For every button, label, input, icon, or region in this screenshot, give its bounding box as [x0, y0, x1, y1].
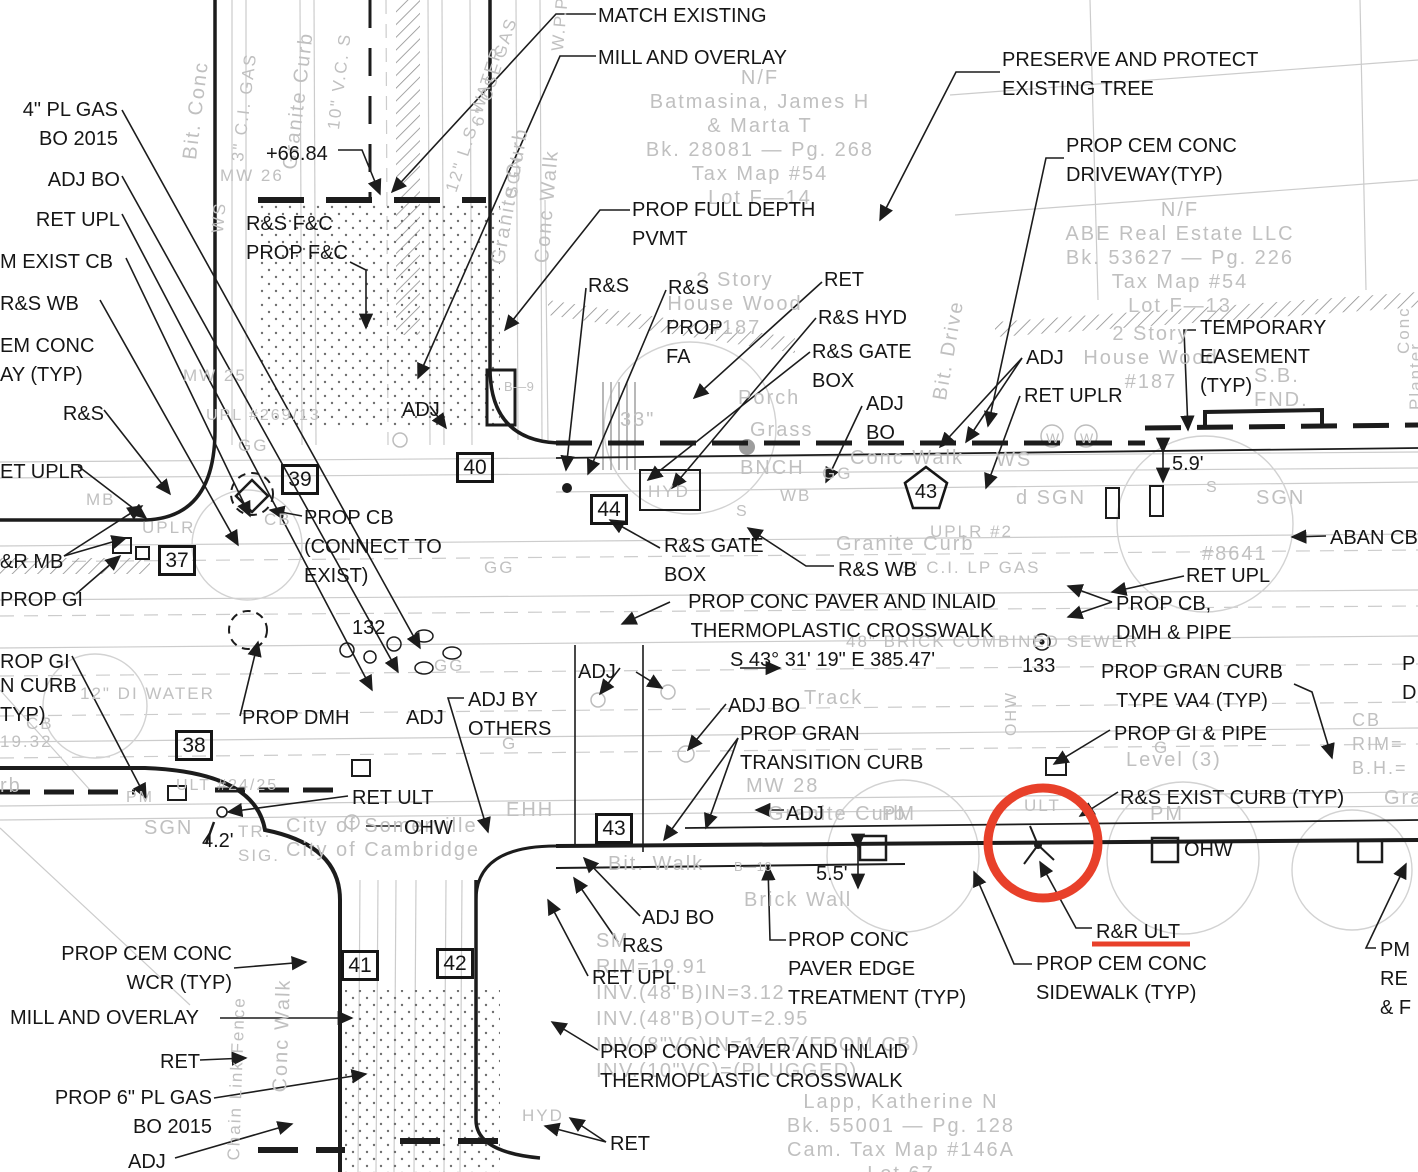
station-box-39: 39: [281, 464, 319, 495]
ohw-rot: OHW: [1000, 691, 1024, 736]
brick-wall: Brick Wall: [744, 888, 852, 912]
callout-bearing: S 43° 31' 19" E 385.47': [730, 646, 935, 675]
callout-ret-ult: RET ULT: [352, 784, 434, 813]
callout-prop-full-depth: PROP FULL DEPTH PVMT: [632, 196, 815, 254]
callout-prop-fa: PROP FA: [666, 314, 723, 372]
callout-adj-by-others: ADJ BY OTHERS: [468, 686, 551, 744]
callout-prop-wcr: PROP CEM CONC WCR (TYP): [30, 940, 232, 998]
station-box-40: 40: [456, 452, 494, 483]
callout-rs-fc-prop-fc: R&S F&C PROP F&C: [246, 210, 348, 268]
gg-2: GG: [484, 556, 514, 580]
gg-3: GG: [434, 654, 464, 678]
callout-adj-bottom: ADJ: [128, 1148, 166, 1172]
gg-4: GG: [822, 462, 852, 486]
callout-adj-right: ADJ: [1026, 344, 1064, 373]
bit-walk: Bit. Walk: [608, 852, 704, 876]
porch: Porch: [738, 386, 800, 410]
callout-rr-ult: R&R ULT: [1096, 918, 1180, 947]
mb: MB: [86, 488, 116, 512]
conc-walk: Conc Walk: [850, 446, 964, 470]
s-1: S: [736, 500, 749, 524]
callout-prop-cb-dmh-pipe: PROP CB, DMH & PIPE: [1116, 590, 1232, 648]
ws: WS: [996, 448, 1032, 472]
di-water: 12" DI WATER: [80, 682, 215, 706]
callout-prop-driveway: PROP CEM CONC DRIVEWAY(TYP): [1066, 132, 1237, 190]
callout-spot-elev: +66.84: [266, 140, 328, 169]
callout-rs-gate-box-2: R&S GATE BOX: [664, 532, 764, 590]
pm-3: PM: [126, 786, 154, 810]
callout-crosswalk-1: PROP CONC PAVER AND INLAID THERMOPLASTIC…: [660, 588, 1024, 646]
callout-aban-cb: ABAN CB: [1330, 524, 1418, 553]
wb: WB: [780, 484, 811, 508]
gg-1: GG: [238, 434, 268, 458]
s-2: S: [1206, 476, 1219, 500]
callout-rs-1: R&S: [588, 272, 629, 301]
sgn-2: SGN: [1256, 486, 1305, 510]
callout-temp-easement: TEMPORARY EASEMENT (TYP): [1200, 314, 1326, 401]
callout-pm-frag: PM RE & F: [1380, 936, 1411, 1023]
w-2: W: [1080, 426, 1093, 450]
callout-right-edge-frag: P D: [1402, 650, 1416, 708]
callout-dim-55: 5.5': [816, 860, 848, 889]
callout-adj-bo-lower: ADJ BO: [728, 692, 800, 721]
callout-adj-top: ADJ: [402, 396, 440, 425]
hyd-1: HYD: [648, 480, 690, 504]
callout-rs-hyd: R&S HYD: [818, 304, 907, 333]
callout-ohw-right: OHW: [1184, 836, 1233, 865]
callout-mill-overlay-top: MILL AND OVERLAY: [598, 44, 787, 73]
callout-adj-bo-mid: ADJ BO: [866, 390, 904, 448]
callout-crosswalk-2: PROP CONC PAVER AND INLAID THERMOPLASTIC…: [600, 1038, 908, 1096]
callout-dim-42: 4.2': [202, 827, 234, 856]
callout-rs-left: R&S: [0, 400, 104, 429]
gran-cut: Gran: [1384, 786, 1418, 810]
callout-ret-uplr-frag: ET UPLR: [0, 458, 84, 487]
callout-adj-wg: ADJ: [578, 658, 616, 687]
cb-39: CB: [264, 508, 292, 532]
sgn-1: d SGN: [1016, 486, 1086, 510]
callout-gran-transition: PROP GRAN TRANSITION CURB: [740, 720, 923, 778]
parcel-note-batmasina: N/F Batmasina, James H & Marta T Bk. 280…: [600, 66, 920, 210]
callout-6in-pl-gas: PROP 6" PL GAS BO 2015: [20, 1084, 212, 1142]
tr-sig: TR. SIG.: [238, 820, 280, 868]
station-box-42: 42: [436, 948, 474, 979]
callout-ret-uplr-right: RET UPLR: [1024, 382, 1123, 411]
callout-rs-gate-box-1: R&S GATE BOX: [812, 338, 912, 396]
callout-cem-conc-frag: EM CONC AY (TYP): [0, 332, 94, 390]
mw-25: MW 25: [183, 364, 247, 388]
callout-prop-cb-connect: PROP CB (CONNECT TO EXIST): [304, 504, 442, 591]
grass: Grass: [750, 418, 813, 442]
cb-rim-bh: CB RIM= B.H.=: [1352, 708, 1408, 780]
planter-rot: Planter: [1404, 342, 1418, 410]
uplr: UPLR: [142, 516, 195, 540]
parcel-note-abe: N/F ABE Real Estate LLC Bk. 53627 — Pg. …: [1020, 198, 1340, 318]
uplr-2: UPLR #2: [930, 520, 1013, 544]
hyd-2: HYD: [522, 1104, 564, 1128]
w-1: W: [1046, 426, 1059, 450]
parcel-note-lapp: Lapp, Katherine N Bk. 55001 — Pg. 128 Ca…: [736, 1090, 1066, 1172]
track: Track: [804, 686, 863, 710]
sgn-3: SGN: [144, 816, 193, 840]
callout-ret-upl-left: RET UPL: [0, 206, 120, 235]
callout-ret-2: RET: [610, 1130, 650, 1159]
callout-gran-curb-va4: PROP GRAN CURB TYPE VA4 (TYP): [1078, 658, 1306, 716]
callout-rs-exist-curb: R&S EXIST CURB (TYP): [1120, 784, 1344, 813]
curb-cut: rb: [0, 774, 22, 798]
callout-prop-dmh: PROP DMH: [242, 704, 349, 733]
callout-prop-sidewalk: PROP CEM CONC SIDEWALK (TYP): [1036, 950, 1207, 1008]
callout-ohw-left: OHW: [404, 814, 453, 843]
ult-24-25: ULT #24/25: [176, 774, 278, 798]
callout-exist-cb: M EXIST CB: [0, 248, 113, 277]
gas-main: 3" C.I. LP GAS: [900, 556, 1041, 580]
callout-adj-bo-bottom: ADJ BO: [642, 904, 714, 933]
callout-adj-small: ADJ: [406, 704, 444, 733]
callout-rs-bottom: R&S: [622, 932, 663, 961]
callout-rs-wb-left: R&S WB: [0, 290, 79, 319]
tree-size: 33": [620, 408, 655, 432]
callout-station-132: 132: [352, 614, 385, 643]
upl-269: UPL #269/13: [206, 404, 321, 428]
b10: B—10: [734, 860, 772, 874]
station-box-43: 43: [595, 813, 633, 844]
station-pentagon-label: 43: [915, 481, 937, 503]
site-plan-drawing: 43 N/F Batmasina, James H & Marta T Bk. …: [0, 0, 1418, 1172]
callout-rs-2: R&S: [668, 274, 709, 303]
callout-gran-curb-frag: N CURB TYP): [0, 672, 77, 730]
callout-station-133: 133: [1022, 652, 1055, 681]
station-box-37: 37: [158, 545, 196, 576]
callout-ret-upl-right: RET UPL: [1186, 562, 1270, 591]
level-3: Level (3): [1126, 748, 1222, 772]
station-box-41: 41: [341, 950, 379, 981]
callout-paver-edge: PROP CONC PAVER EDGE TREATMENT (TYP): [788, 926, 966, 1013]
callout-rr-mb-frag: &R MB: [0, 548, 63, 577]
callout-rs-wb-mid: R&S WB: [838, 556, 917, 585]
station-box-44: 44: [590, 494, 628, 525]
callout-ret-upl-bottom: RET UPL: [592, 964, 676, 993]
callout-ret-3: RET: [160, 1048, 200, 1077]
callout-4in-pl-gas: 4" PL GAS BO 2015: [0, 96, 118, 154]
conc-walk-rot-3: Conc Walk: [268, 978, 296, 1093]
ult-pole: ULT: [1024, 794, 1061, 818]
ehh: EHH: [506, 798, 554, 822]
callout-ret-1: RET: [824, 266, 864, 295]
callout-adj-curb: ADJ: [786, 800, 824, 829]
callout-adj-bo-left: ADJ BO: [0, 166, 120, 195]
station-box-38: 38: [175, 730, 213, 761]
ws-rot: WS: [206, 201, 233, 234]
callout-match-existing: MATCH EXISTING: [598, 2, 767, 31]
callout-mill-overlay-bottom: MILL AND OVERLAY: [10, 1004, 199, 1033]
callout-dim-59: 5.9': [1172, 450, 1204, 479]
callout-preserve-tree: PRESERVE AND PROTECT EXISTING TREE: [1002, 46, 1258, 104]
b9: B—9: [504, 380, 534, 394]
callout-prop-gi-pipe: PROP GI & PIPE: [1114, 720, 1267, 749]
callout-prop-gi-1: PROP GI: [0, 586, 83, 615]
bench: BNCH: [740, 456, 805, 480]
